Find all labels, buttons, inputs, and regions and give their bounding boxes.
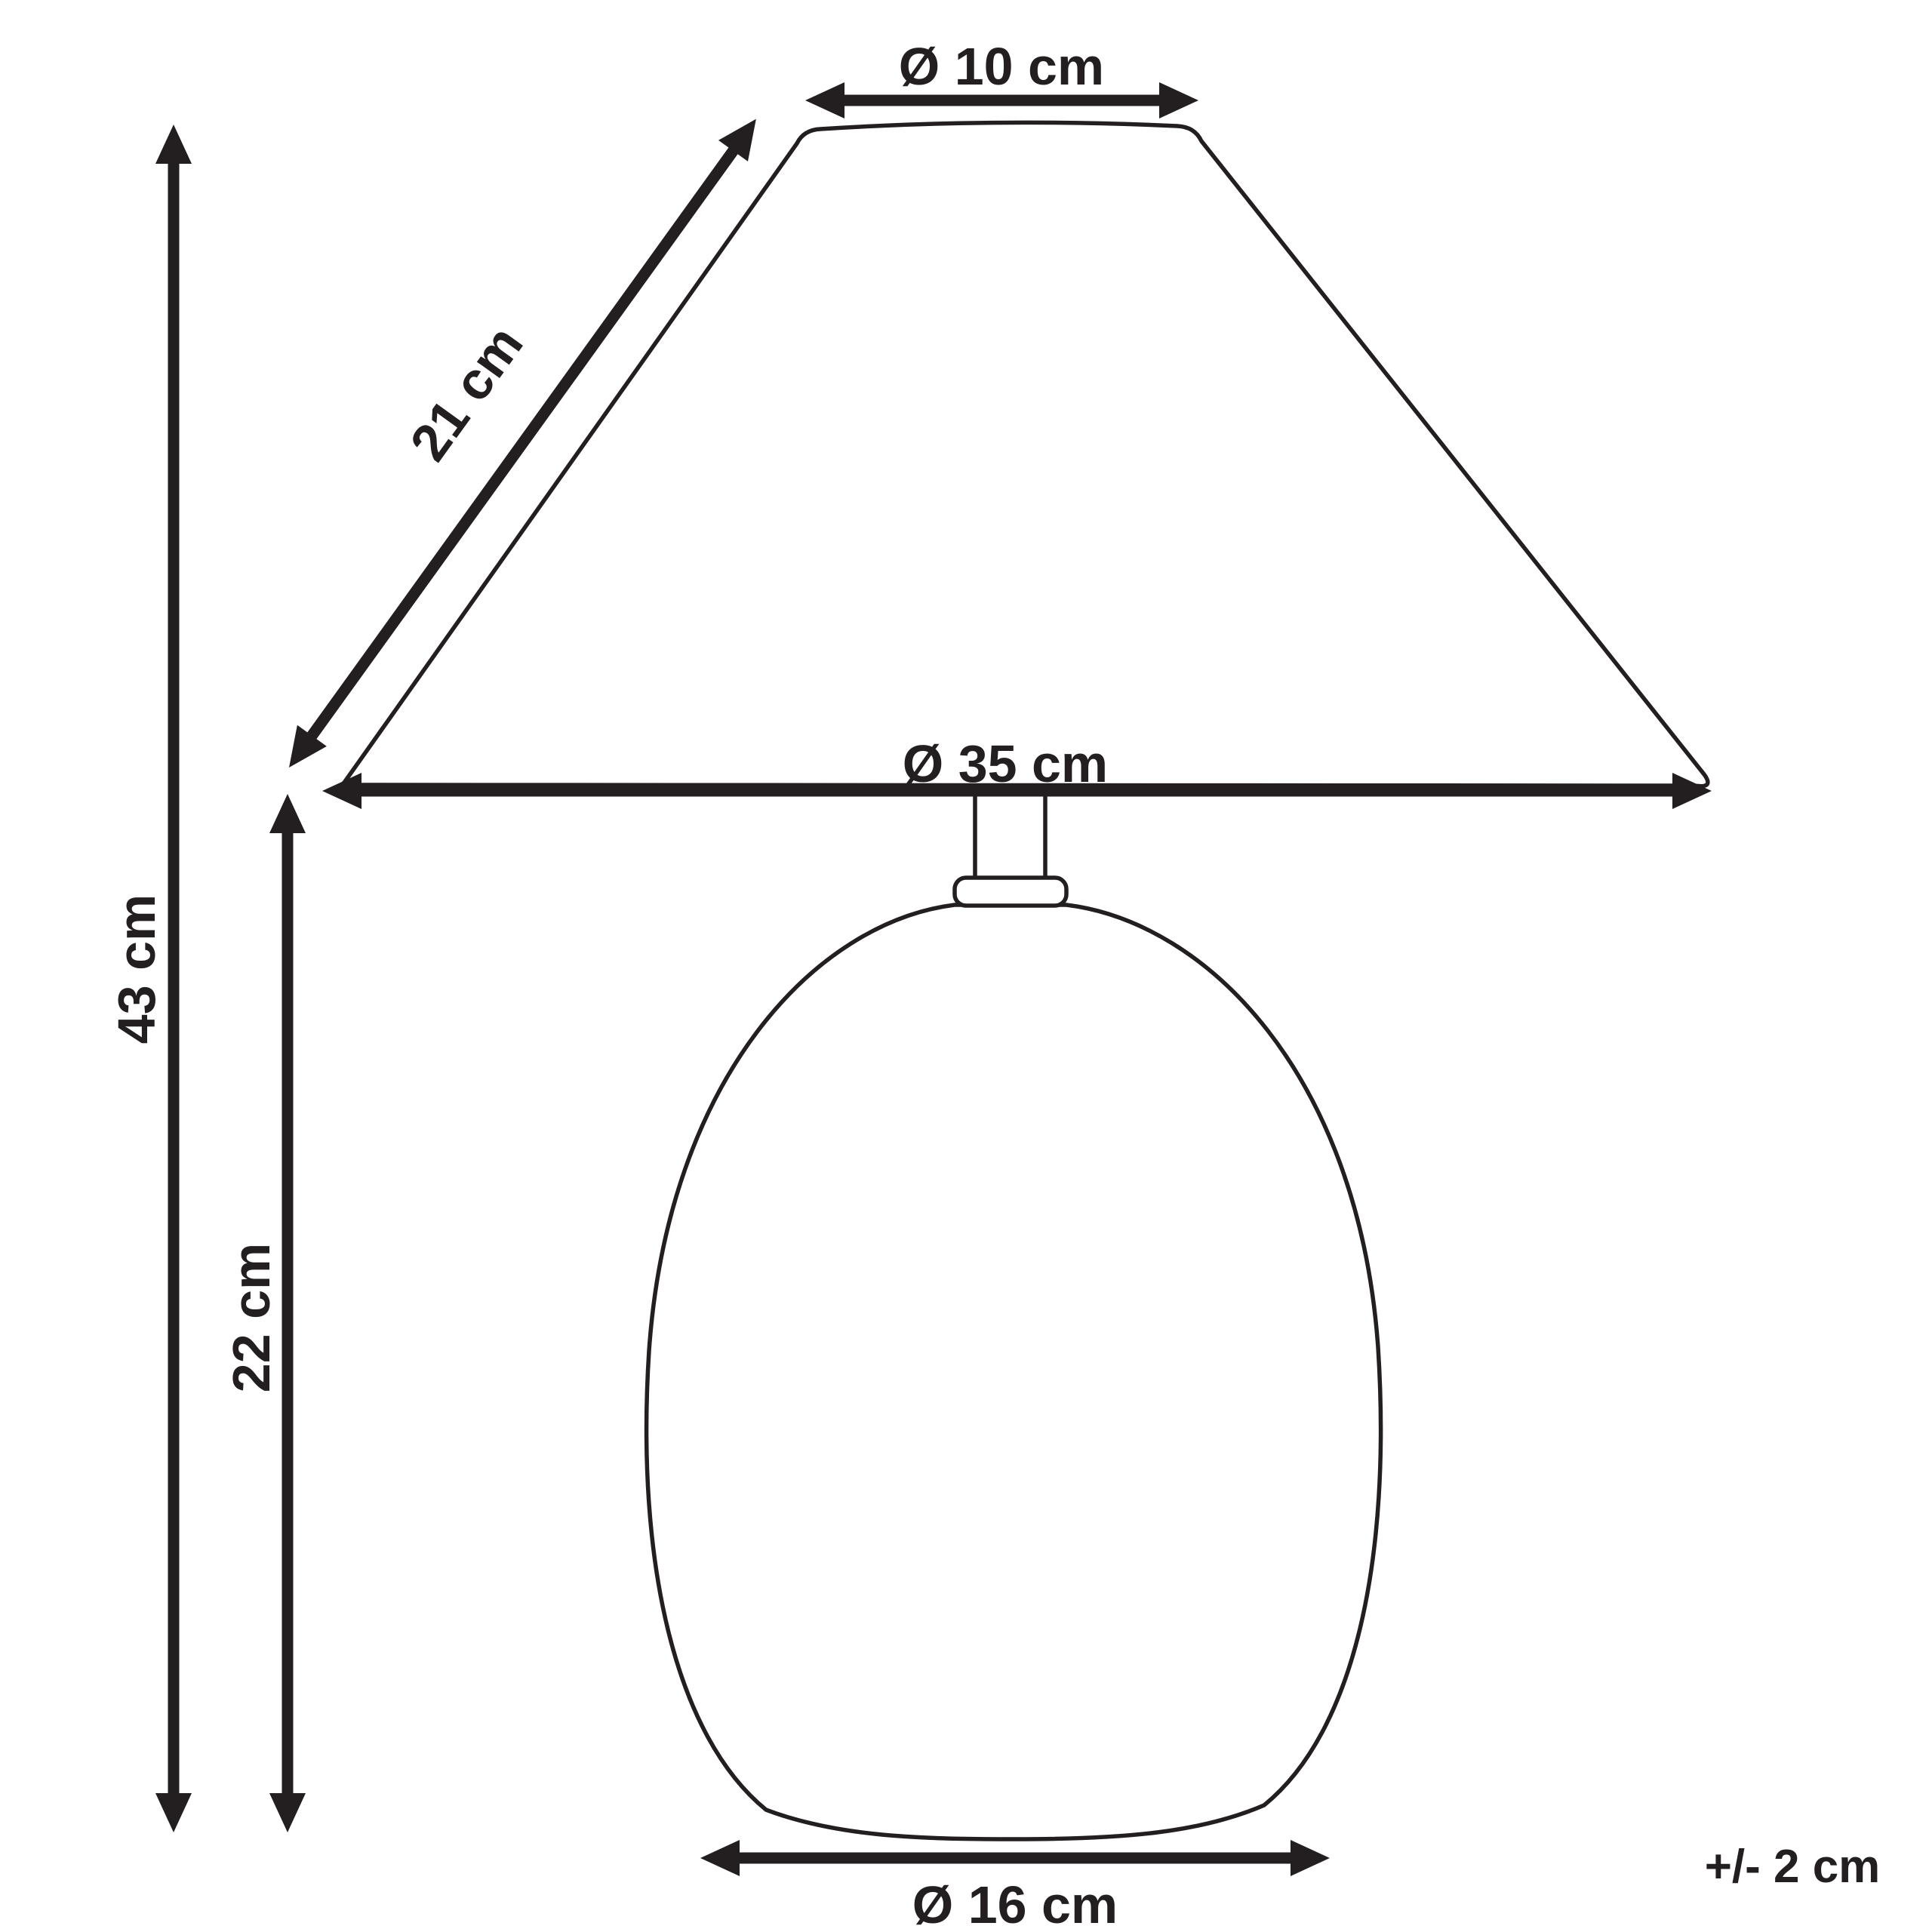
- lamp-base-body-outline: [647, 905, 1381, 1839]
- label-total-height: 43 cm: [107, 894, 166, 1044]
- lampshade-outline: [343, 122, 1708, 786]
- arrowhead-top-icon: [155, 125, 192, 164]
- label-shade-top-diameter: Ø 10 cm: [899, 37, 1104, 96]
- diagram-canvas: Ø 10 cm 21 cm Ø 35 cm 43 cm 22 cm Ø 16 c…: [0, 0, 1932, 1932]
- arrowhead-right-icon: [1159, 82, 1198, 118]
- dimension-arrow-shade-slant-height: [275, 109, 771, 778]
- arrowhead-bottom-icon: [269, 1793, 306, 1832]
- arrowhead-top-icon: [269, 794, 306, 833]
- arrowhead-bottom-icon: [155, 1793, 192, 1832]
- dimension-arrow-base-diameter: [700, 1840, 1330, 1876]
- label-shade-bottom-diameter: Ø 35 cm: [903, 734, 1108, 793]
- label-tolerance-note: +/- 2 cm: [1705, 1841, 1881, 1893]
- arrowhead-left-icon: [322, 773, 361, 809]
- arrowhead-right-icon: [1291, 1840, 1330, 1876]
- label-base-height: 22 cm: [222, 1243, 281, 1392]
- lamp-collar: [955, 878, 1066, 906]
- lamp-dimensions-diagram: Ø 10 cm 21 cm Ø 35 cm 43 cm 22 cm Ø 16 c…: [0, 0, 1932, 1932]
- arrowhead-left-icon: [805, 82, 844, 118]
- label-base-diameter: Ø 16 cm: [912, 1875, 1118, 1932]
- arrowhead-left-icon: [700, 1840, 740, 1876]
- arrow-shaft: [309, 147, 736, 740]
